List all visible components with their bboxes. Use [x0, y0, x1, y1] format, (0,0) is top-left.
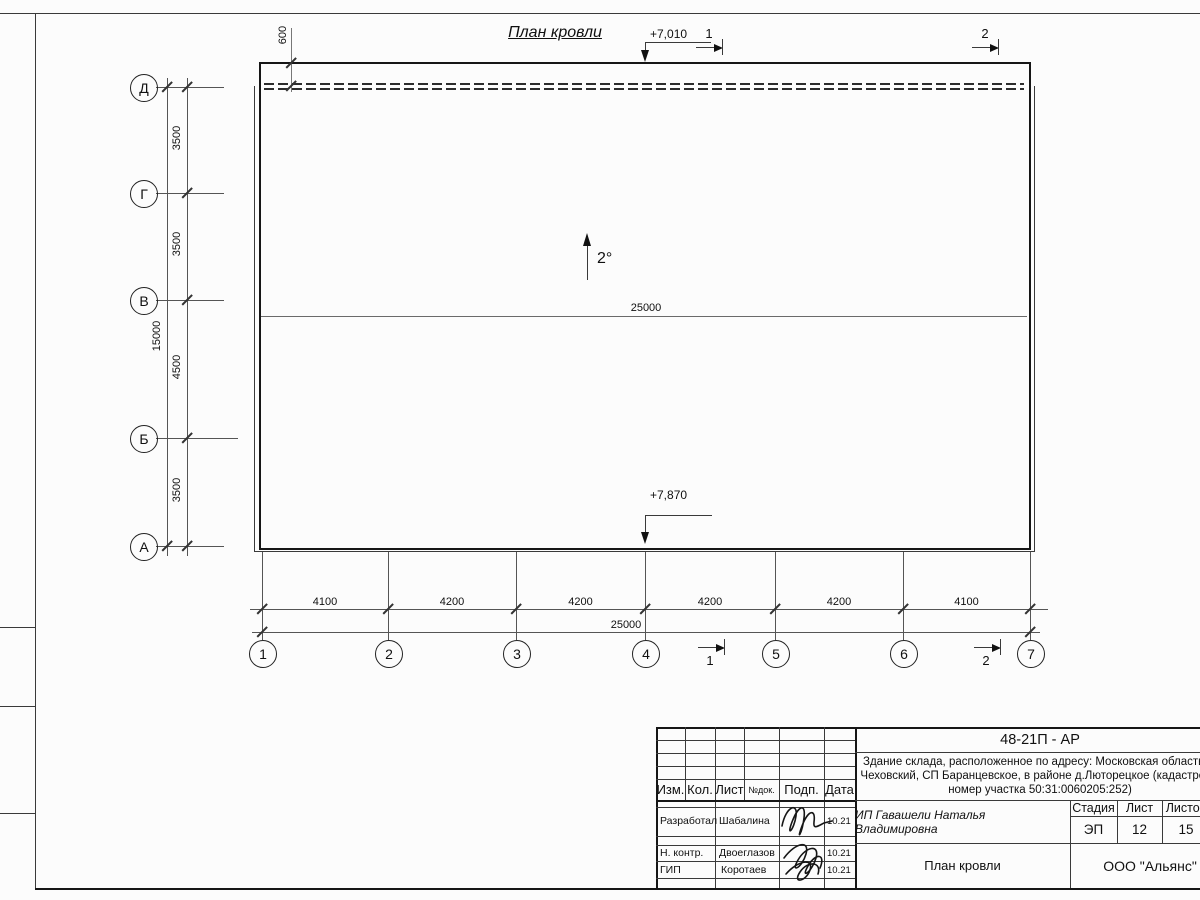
col-label: №док.: [748, 785, 774, 795]
axis-bubble-4: 4: [632, 640, 660, 668]
project-code: 48-21П - АР: [855, 727, 1200, 752]
grid-line-axis-7: [1030, 552, 1031, 640]
project-code-text: 48-21П - АР: [1000, 732, 1080, 748]
sheets-header-label: Листов: [1166, 801, 1200, 815]
stage-value: ЭП: [1084, 822, 1103, 837]
slope-arrow-line: [587, 246, 588, 280]
section-mark-tick: [722, 39, 723, 55]
section-mark-1-label: 1: [699, 26, 719, 41]
axis-label: 3: [513, 646, 521, 662]
sheets-header-cell: Листов: [1162, 800, 1200, 816]
col-label: Лист: [715, 782, 743, 797]
titleblock-col-list: Лист: [715, 779, 744, 800]
titleblock-grid-line: [656, 753, 855, 754]
frame-margin-tick: [0, 813, 35, 814]
elevation-arrow-icon: [641, 532, 649, 544]
elevation-leader: [645, 515, 712, 516]
axis-bubble-A: А: [130, 533, 158, 561]
axis-label: В: [139, 293, 148, 309]
axis-label: 7: [1027, 646, 1035, 662]
dim-label: 4200: [775, 596, 903, 608]
section-mark-2-label: 2: [975, 26, 995, 41]
dim-label: 3500: [171, 214, 183, 274]
section-mark-2-label: 2: [976, 653, 996, 668]
section-mark-tick: [1000, 639, 1001, 655]
dim-label: 4200: [645, 596, 775, 608]
sheet-title-cell: План кровли: [855, 843, 1070, 888]
sheet-number: 12: [1132, 822, 1147, 837]
axis-label: Б: [139, 431, 148, 447]
col-label: Подп.: [784, 782, 819, 797]
stage-header-label: Стадия: [1072, 801, 1115, 815]
frame-top-line: [0, 13, 1200, 14]
axis-bubble-2: 2: [375, 640, 403, 668]
role-label: Н. контр.: [660, 847, 703, 859]
axis-label: Г: [140, 186, 148, 202]
ridge-dimension-label: 25000: [580, 302, 712, 314]
elevation-label-top: +7,010: [650, 27, 687, 41]
elevation-leader: [645, 42, 711, 43]
axis-label: 2: [385, 646, 393, 662]
dim-label: 4100: [262, 596, 388, 608]
dim-label: 4200: [388, 596, 516, 608]
sheet-header-cell: Лист: [1117, 800, 1162, 816]
frame-left-line: [35, 13, 36, 889]
axis-bubble-V: В: [130, 287, 158, 315]
dim-label: 4500: [171, 337, 183, 397]
axis-bubble-G: Г: [130, 180, 158, 208]
sheet-number-cell: 12: [1117, 816, 1162, 843]
axis-label: 1: [259, 646, 267, 662]
axis-label: 4: [642, 646, 650, 662]
axis-bubble-7: 7: [1017, 640, 1045, 668]
dim-label: 3500: [171, 460, 183, 520]
frame-margin-tick: [0, 627, 35, 628]
section-mark-tick: [998, 39, 999, 55]
company-cell: ООО "Альянс": [1070, 843, 1200, 888]
client-name-text: ИП Гавашели Наталья Владимировна: [855, 808, 1070, 836]
section-mark-tick: [724, 639, 725, 655]
dim-label: 4100: [903, 596, 1030, 608]
axis-label: 5: [772, 646, 780, 662]
client-name: ИП Гавашели Наталья Владимировна: [855, 800, 1070, 843]
axis-label: Д: [139, 80, 148, 96]
building-right-edge: [1034, 86, 1035, 552]
bottom-total-dim-line: [252, 632, 1040, 633]
role-name: Двоеглазов: [719, 847, 775, 859]
sheets-total: 15: [1178, 822, 1193, 837]
axis-bubble-1: 1: [249, 640, 277, 668]
page-title: План кровли: [490, 24, 620, 42]
col-label: Кол.: [687, 782, 713, 797]
bottom-segment-dim-line: [250, 609, 1048, 610]
role-label: ГИП: [660, 864, 681, 876]
elevation-label-bottom: +7,870: [650, 488, 687, 502]
sheet-title-text: План кровли: [924, 858, 1001, 873]
building-left-edge: [254, 86, 255, 552]
axis-label: 6: [900, 646, 908, 662]
roof-parapet-dashed-line: [264, 83, 1024, 85]
dim-label: 3500: [171, 108, 183, 168]
titleblock-col-izm: Изм.: [656, 779, 685, 800]
axis-bubble-B: Б: [130, 425, 158, 453]
project-description-line: Чеховский, СП Баранцевское, в районе д.Л…: [858, 770, 1200, 782]
axis-bubble-5: 5: [762, 640, 790, 668]
role-name: Коротаев: [721, 864, 766, 876]
frame-bottom-line: [35, 888, 1200, 890]
dim-label-total: 15000: [151, 306, 163, 366]
sheet-header-label: Лист: [1126, 801, 1153, 815]
col-label: Дата: [825, 782, 854, 797]
signature-scribbles: [774, 796, 852, 888]
titleblock-grid-line: [656, 740, 855, 741]
slope-arrow-icon: [583, 233, 591, 246]
col-label: Изм.: [657, 782, 685, 797]
roof-parapet-dashed-line: [264, 88, 1024, 90]
axis-bubble-3: 3: [503, 640, 531, 668]
slope-label: 2°: [597, 250, 612, 268]
company-name: ООО "Альянс": [1103, 858, 1197, 874]
left-total-dim-line: [167, 78, 168, 556]
grid-line-axis-B: [156, 438, 238, 439]
roof-ridge-line: [261, 316, 1027, 317]
frame-margin-tick: [0, 706, 35, 707]
left-segment-dim-line: [187, 78, 188, 556]
dim-label: 4200: [516, 596, 645, 608]
titleblock-grid-line: [855, 752, 1200, 753]
project-description-line: Здание склада, расположенное по адресу: …: [858, 756, 1200, 768]
axis-bubble-D: Д: [130, 74, 158, 102]
role-name: Шабалина: [719, 815, 770, 827]
axis-label: А: [139, 539, 148, 555]
axis-bubble-6: 6: [890, 640, 918, 668]
titleblock-grid-line: [656, 766, 855, 767]
sheets-total-cell: 15: [1162, 816, 1200, 843]
section-mark-1-label: 1: [700, 653, 720, 668]
parapet-dim-label: 600: [277, 5, 289, 65]
elevation-arrow-icon: [641, 50, 649, 62]
titleblock-col-kol: Кол.: [685, 779, 715, 800]
role-label: Разработал: [660, 815, 717, 827]
stage-value-cell: ЭП: [1070, 816, 1117, 843]
drawing-sheet: План кровли 25000 2° 600 +7,010 +7,870 1…: [0, 0, 1200, 900]
stage-header-cell: Стадия: [1070, 800, 1117, 816]
dim-label-total: 25000: [560, 619, 692, 631]
project-description-line: номер участка 50:31:0060205:252): [858, 784, 1200, 796]
